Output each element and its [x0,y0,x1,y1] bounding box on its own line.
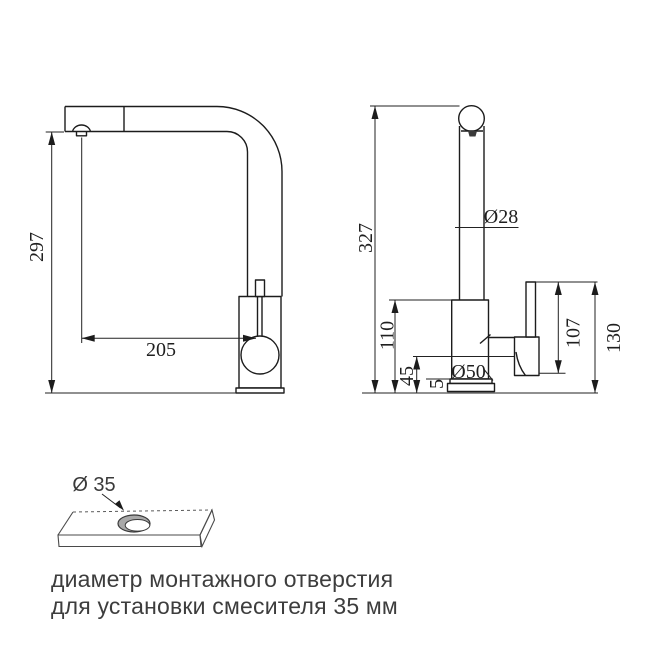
front-spout-reach-dimension-label: 205 [146,339,176,361]
dimension-base-plate-thickness: 5 [426,379,450,389]
mounting-hole-caption: диаметр монтажного отверстия для установ… [51,566,398,620]
dimension-spout-diameter: Ø28 [455,206,519,228]
faucet-technical-drawing-page: 297 205 [0,0,650,650]
side-view-outline [413,106,539,392]
dimension-front-spout-reach: 205 [82,138,256,362]
front-height-dimension-label: 297 [26,232,48,262]
caption-line-1: диаметр монтажного отверстия [51,566,398,593]
body-height-dimension-label: 110 [377,321,399,350]
base-diameter-label: Ø50 [451,361,485,383]
lower-section-dimension-label: 45 [396,366,418,386]
spout-diameter-label: Ø28 [484,206,518,228]
dimension-handle-top-height: 130 [592,282,626,393]
mounting-hole-illustration: Ø 35 [58,474,215,547]
side-total-height-dimension-label: 327 [355,223,377,253]
dimension-front-height: 297 [26,132,64,393]
handle-top-height-dimension-label: 130 [603,323,625,353]
side-view-dimensions: 327 Ø28 110 45 5 Ø50 [355,106,625,393]
dimension-lower-section-height: 45 [396,357,420,394]
caption-line-2: для установки смесителя 35 мм [51,593,398,620]
faucet-technical-drawing: 297 205 [0,0,650,650]
mounting-hole-diameter-label: Ø 35 [72,474,115,496]
handle-length-dimension-label: 107 [563,318,585,348]
base-plate-thickness-label: 5 [426,379,448,389]
dimension-side-total-height: 327 [355,106,460,393]
dimension-handle-length: 107 [536,282,598,373]
